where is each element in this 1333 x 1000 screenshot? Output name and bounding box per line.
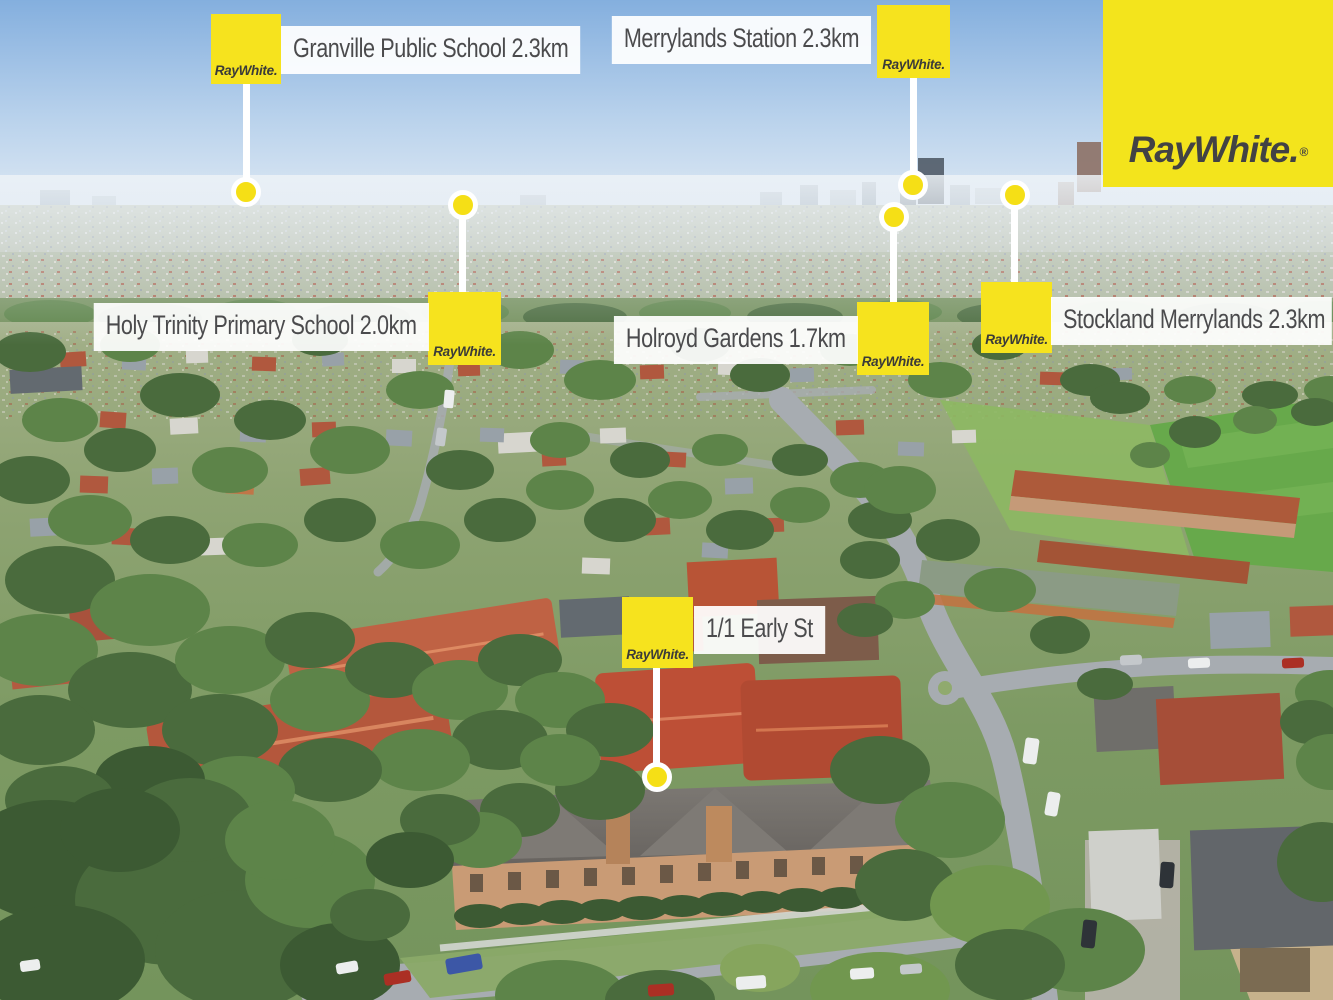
raywhite-logo: RayWhite.® — [1103, 0, 1333, 187]
raywhite-badge-text: RayWhite. — [433, 344, 496, 365]
raywhite-badge-text: RayWhite. — [215, 63, 278, 84]
leader-line — [1011, 200, 1018, 284]
raywhite-badge: RayWhite. — [981, 282, 1052, 353]
raywhite-badge-text: RayWhite. — [862, 354, 925, 375]
property-address-label: 1/1 Early St — [694, 606, 825, 654]
location-dot — [1000, 180, 1030, 210]
raywhite-badge: RayWhite. — [428, 292, 501, 365]
raywhite-badge-text: RayWhite. — [626, 647, 689, 668]
poi-label: Stockland Merrylands 2.3km — [1051, 297, 1332, 345]
location-dot — [879, 202, 909, 232]
raywhite-badge: RayWhite. — [622, 597, 693, 668]
raywhite-badge: RayWhite. — [877, 5, 950, 78]
poi-label: Holy Trinity Primary School 2.0km — [94, 303, 429, 351]
location-dot — [642, 762, 672, 792]
leader-line — [890, 222, 897, 304]
location-dot — [898, 170, 928, 200]
registered-trademark-symbol: ® — [1300, 145, 1308, 159]
raywhite-logo-text: RayWhite.® — [1129, 129, 1308, 171]
poi-label: Holroyd Gardens 1.7km — [614, 316, 858, 364]
raywhite-badge: RayWhite. — [211, 14, 281, 84]
raywhite-badge-text: RayWhite. — [882, 57, 945, 78]
location-dot — [231, 177, 261, 207]
leader-line — [243, 84, 250, 184]
leader-line — [459, 210, 466, 294]
raywhite-badge-text: RayWhite. — [985, 332, 1048, 353]
raywhite-badge: RayWhite. — [857, 302, 929, 375]
location-dot — [448, 190, 478, 220]
poi-label: Merrylands Station 2.3km — [612, 16, 871, 64]
raywhite-aerial-marketing-image: RayWhite. Granville Public School 2.3km … — [0, 0, 1333, 1000]
leader-line — [910, 78, 917, 176]
poi-label: Granville Public School 2.3km — [281, 26, 580, 74]
leader-line — [653, 668, 660, 768]
